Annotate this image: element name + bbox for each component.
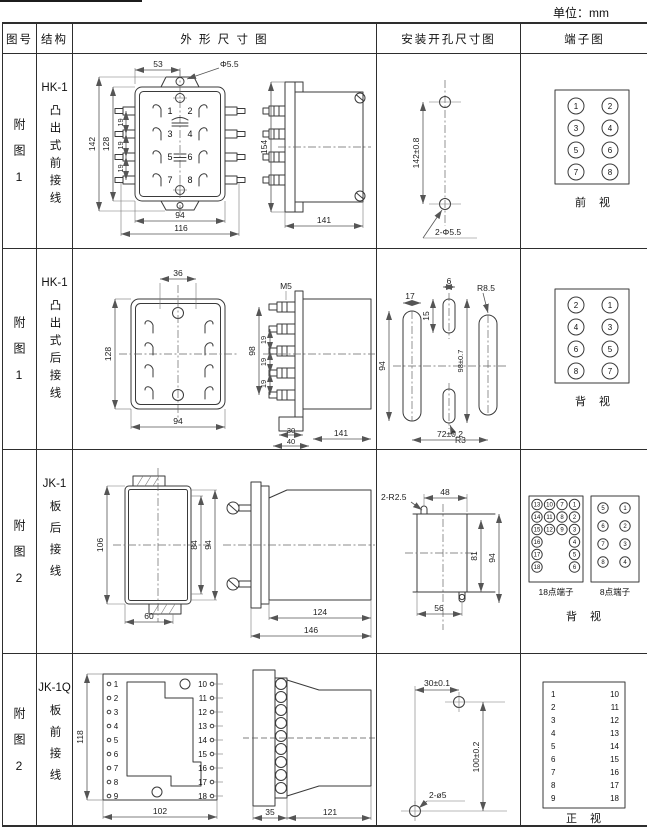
dim-label: 30 xyxy=(287,426,295,435)
terminal-studs xyxy=(269,302,295,400)
dim-label: 19 xyxy=(259,358,268,366)
terminal-number: 14 xyxy=(610,742,619,751)
outline-drawing-row2: 36 128 94 xyxy=(73,249,377,450)
view-caption: 背 视 xyxy=(575,394,615,408)
dim-label: 116 xyxy=(174,223,188,233)
terminal-number: 18 xyxy=(534,565,541,571)
dim-label: 102 xyxy=(153,806,167,816)
terminal-number: 5 xyxy=(574,146,579,155)
structure-row4: JK-1Q 板前接线 xyxy=(37,654,73,825)
dim-label: 53 xyxy=(153,59,163,69)
model-label: HK-1 xyxy=(41,277,67,289)
dim-label: 94 xyxy=(175,210,185,220)
side-view: 35 121 xyxy=(243,670,375,820)
dim-label: 146 xyxy=(304,625,318,635)
terminal-number: 5 xyxy=(551,742,556,751)
terminal-number: 2 xyxy=(608,102,613,111)
terminal-diagram-row2: 2 1 4 3 6 5 8 7 背 视 xyxy=(521,249,647,450)
terminal-number: 1 xyxy=(623,506,627,512)
terminal-number: 2 xyxy=(114,694,119,703)
dim-label: 141 xyxy=(334,428,348,438)
dim-label: 15 xyxy=(421,311,431,321)
terminal-number: 17 xyxy=(534,553,541,559)
terminal-number: 8 xyxy=(608,168,613,177)
terminal-number: 2 xyxy=(573,515,577,521)
dim-label: 56 xyxy=(434,603,444,613)
terminal-number: 1 xyxy=(114,680,119,689)
side-view: 124 146 xyxy=(223,482,375,638)
figure-label-row2: 附图1 xyxy=(3,249,37,450)
mounting-drawing-row2: 17 6 15 94 98±0.7 R8.5 R3 72±0.2 xyxy=(377,249,521,450)
terminal-number: 8 xyxy=(114,778,119,787)
terminal-number: 12 xyxy=(546,528,553,534)
terminal-number: 6 xyxy=(601,524,605,530)
structure-row1: HK-1 凸出式前接线 xyxy=(37,54,73,249)
header-structure: 结构 xyxy=(37,24,73,54)
dim-label: 154 xyxy=(259,140,269,154)
dim-label: 100±0.2 xyxy=(471,741,481,772)
terminal-number: 3 xyxy=(167,129,172,139)
terminal-number: 2 xyxy=(187,106,192,116)
terminal-number: 7 xyxy=(574,168,579,177)
hole-spec-label: 2-Φ5.5 xyxy=(435,227,461,237)
dim-label: 72±0.2 xyxy=(437,429,463,439)
dim-label: 128 xyxy=(101,137,111,151)
dim-label: 94 xyxy=(173,416,183,426)
view-caption: 正 视 xyxy=(566,811,606,824)
terminal-number: 2 xyxy=(574,301,579,310)
terminal-number: 5 xyxy=(601,506,605,512)
terminal-number: 7 xyxy=(167,175,172,185)
terminal-number: 6 xyxy=(187,152,192,162)
dim-label: Φ5.5 xyxy=(220,59,239,69)
dim-label: 81 xyxy=(469,551,479,561)
terminal-number: 4 xyxy=(114,722,119,731)
terminal-number: 8 xyxy=(574,367,579,376)
model-label: HK-1 xyxy=(41,82,67,94)
dim-label: 94 xyxy=(377,361,387,371)
front-view: 36 128 94 xyxy=(103,268,237,429)
terminal-number: 6 xyxy=(608,146,613,155)
terminal-number: 3 xyxy=(573,528,577,534)
front-view: 1 2 3 4 5 6 7 8 53 Φ5.5 142 xyxy=(87,59,245,236)
dim-label: 19 xyxy=(259,336,268,344)
dim-label: 19 xyxy=(116,141,125,149)
terminal-group-label: 18点端子 xyxy=(539,587,574,597)
terminal-number: 14 xyxy=(198,736,207,745)
hole-spec-label: 2-ø5 xyxy=(429,790,447,800)
terminal-circles: 1 2 3 4 5 6 7 8 xyxy=(568,98,618,180)
model-label: JK-1 xyxy=(43,478,67,490)
terminal-number: 1 xyxy=(573,503,577,509)
terminal-diagram-row4: 1 2 3 4 5 6 7 8 9 10 11 12 13 14 15 16 1 xyxy=(521,654,647,825)
figure-label-row3: 附图2 xyxy=(3,450,37,654)
terminal-diagram-row3: 13 10 7 1 14 11 8 2 15 12 9 3 16 4 17 5 xyxy=(521,450,647,654)
structure-label: 板前接线 xyxy=(47,704,63,790)
terminal-number: 17 xyxy=(610,781,619,790)
terminal-number: 11 xyxy=(199,694,208,703)
terminal-number: 10 xyxy=(198,680,207,689)
left-terminals: 1 2 3 4 5 6 7 8 9 xyxy=(107,680,119,801)
dim-label: 106 xyxy=(95,538,105,552)
mounting-drawing-row4: 30±0.1 100±0.2 2-ø5 xyxy=(377,654,521,825)
terminal-number: 10 xyxy=(610,690,619,699)
view-caption: 背 视 xyxy=(566,609,606,623)
outline-drawing-row4: 1 2 3 4 5 6 7 8 9 10 11 12 13 xyxy=(73,654,377,825)
dim-label: 19 xyxy=(116,164,125,172)
terminal-number: 9 xyxy=(114,792,119,801)
terminal-number: 8 xyxy=(601,560,605,566)
terminal-number: 9 xyxy=(560,528,564,534)
terminal-number: 16 xyxy=(534,540,541,546)
terminal-number: 6 xyxy=(573,565,577,571)
right-terminals: 10 11 12 13 14 15 16 17 18 xyxy=(198,680,223,801)
terminal-number: 7 xyxy=(560,503,564,509)
mounting-drawing-row3: 2-R2.5 48 81 94 56 xyxy=(377,450,521,654)
radius-label: R8.5 xyxy=(477,283,495,293)
page-edge-line xyxy=(0,0,142,2)
terminal-number: 9 xyxy=(551,794,556,803)
terminal-number: 7 xyxy=(608,367,613,376)
dim-label: 124 xyxy=(313,607,327,617)
contact-symbol xyxy=(174,154,186,161)
dim-label: 142±0.8 xyxy=(411,137,421,168)
dim-label: 30±0.1 xyxy=(424,678,450,688)
dim-label: 19 xyxy=(116,118,125,126)
terminal-number: 3 xyxy=(608,323,613,332)
terminal-number: 2 xyxy=(551,703,556,712)
terminal-number: 5 xyxy=(167,152,172,162)
unit-label: 单位：mm xyxy=(553,4,609,21)
terminal-number: 1 xyxy=(167,106,172,116)
terminal-number: 7 xyxy=(551,768,556,777)
terminal-number: 8 xyxy=(551,781,556,790)
header-mounting: 安装开孔尺寸图 xyxy=(377,24,521,54)
structure-label: 凸出式前接线 xyxy=(47,104,63,209)
terminal-number: 5 xyxy=(114,736,119,745)
terminal-number: 16 xyxy=(610,768,619,777)
terminal-number: 10 xyxy=(546,503,553,509)
dim-label: 60 xyxy=(144,611,154,621)
side-view: M5 98 19 19 19 30 40 141 xyxy=(247,281,375,446)
dim-label: 35 xyxy=(265,807,275,817)
figure-label-row1: 附图1 xyxy=(3,54,37,249)
terminal-number: 4 xyxy=(623,560,627,566)
dim-label: 17 xyxy=(405,291,415,301)
terminal-group-label: 8点端子 xyxy=(600,587,631,597)
figure-label-row4: 附图2 xyxy=(3,654,37,825)
terminal-number: 11 xyxy=(611,703,620,712)
terminal-number: 14 xyxy=(534,515,541,521)
outline-drawing-row3: 106 84 94 60 xyxy=(73,450,377,654)
terminal-number: 15 xyxy=(198,750,207,759)
spec-sheet-page: 单位：mm 图号 结构 外 形 尺 寸 图 安装开孔尺寸图 端子图 附图1 HK… xyxy=(0,0,647,828)
outline-drawing-row1: 1 2 3 4 5 6 7 8 53 Φ5.5 142 xyxy=(73,54,377,249)
front-view: 1 2 3 4 5 6 7 8 9 10 11 12 13 xyxy=(75,674,223,819)
terminal-number: 1 xyxy=(551,690,556,699)
terminal-number: 13 xyxy=(198,722,207,731)
dim-label: 6 xyxy=(447,276,452,286)
terminal-number: 6 xyxy=(574,345,579,354)
terminal-number: 13 xyxy=(610,729,619,738)
terminal-number: 15 xyxy=(610,755,619,764)
terminal-number: 16 xyxy=(198,764,207,773)
terminal-number: 4 xyxy=(574,323,579,332)
terminal-number: 12 xyxy=(198,708,207,717)
terminal-circles-18: 13 10 7 1 14 11 8 2 15 12 9 3 16 4 17 5 xyxy=(532,499,580,572)
dim-label: 84 xyxy=(189,540,199,550)
thread-label: M5 xyxy=(280,281,292,291)
dim-label: 118 xyxy=(75,730,85,744)
terminal-circles-8: 5 1 6 2 7 3 8 4 xyxy=(598,503,630,567)
terminal-number: 4 xyxy=(551,729,556,738)
terminal-number: 3 xyxy=(551,716,556,725)
terminal-number: 1 xyxy=(608,301,613,310)
dim-label: 94 xyxy=(487,553,497,563)
terminal-number: 8 xyxy=(187,175,192,185)
terminal-number: 7 xyxy=(114,764,119,773)
terminal-number: 4 xyxy=(608,124,613,133)
structure-row3: JK-1 板后接线 xyxy=(37,450,73,654)
terminal-circles: 2 1 4 3 6 5 8 7 xyxy=(568,297,618,379)
terminal-number: 6 xyxy=(551,755,556,764)
terminal-number: 18 xyxy=(198,792,207,801)
dim-label: 36 xyxy=(173,268,183,278)
dim-label: 19 xyxy=(259,380,268,388)
spec-table: 图号 结构 外 形 尺 寸 图 安装开孔尺寸图 端子图 附图1 HK-1 凸出式… xyxy=(2,22,647,827)
terminal-number-list: 1 2 3 4 5 6 7 8 9 10 11 12 13 14 15 16 1 xyxy=(551,690,620,803)
dim-label: 98 xyxy=(247,346,257,356)
dim-label: 40 xyxy=(287,437,295,446)
terminal-diagram-row1: 1 2 3 4 5 6 7 8 前 视 xyxy=(521,54,647,249)
view-caption: 前 视 xyxy=(575,195,615,209)
terminal-number: 3 xyxy=(623,542,627,548)
terminal-number: 6 xyxy=(114,750,119,759)
dim-label: 121 xyxy=(323,807,337,817)
terminal-number: 15 xyxy=(534,528,541,534)
terminal-number: 5 xyxy=(608,345,613,354)
terminal-number: 5 xyxy=(573,553,577,559)
terminal-number: 1 xyxy=(574,102,579,111)
dim-label: 94 xyxy=(203,540,213,550)
terminal-number: 3 xyxy=(574,124,579,133)
radius-label: 2-R2.5 xyxy=(381,492,407,502)
terminal-number: 4 xyxy=(187,129,192,139)
dim-label: 128 xyxy=(103,347,113,361)
terminal-number: 18 xyxy=(610,794,619,803)
front-view: 106 84 94 60 xyxy=(95,468,217,624)
terminal-number: 13 xyxy=(534,503,541,509)
terminal-number: 7 xyxy=(601,542,605,548)
structure-label: 凸出式后接线 xyxy=(47,299,63,404)
terminal-bumps xyxy=(276,679,287,794)
dim-label: 48 xyxy=(440,487,450,497)
contact-hook-icons xyxy=(145,321,213,399)
terminal-number: 17 xyxy=(198,778,207,787)
structure-label: 板后接线 xyxy=(47,500,63,586)
side-view: 154 141 xyxy=(259,82,371,228)
structure-row2: HK-1 凸出式后接线 xyxy=(37,249,73,450)
terminal-number: 12 xyxy=(610,716,619,725)
mounting-drawing-row1: 142±0.8 2-Φ5.5 xyxy=(377,54,521,249)
model-label: JK-1Q xyxy=(38,682,71,694)
terminal-number: 4 xyxy=(573,540,577,546)
header-figure: 图号 xyxy=(3,24,37,54)
terminal-number: 8 xyxy=(560,515,564,521)
dim-label: 142 xyxy=(87,137,97,151)
header-outline: 外 形 尺 寸 图 xyxy=(73,24,377,54)
terminal-number: 3 xyxy=(114,708,119,717)
dim-label: 98±0.7 xyxy=(456,350,465,373)
dim-label: 141 xyxy=(317,215,331,225)
terminal-number: 11 xyxy=(546,515,553,521)
header-terminal: 端子图 xyxy=(521,24,647,54)
terminal-number: 2 xyxy=(623,524,627,530)
